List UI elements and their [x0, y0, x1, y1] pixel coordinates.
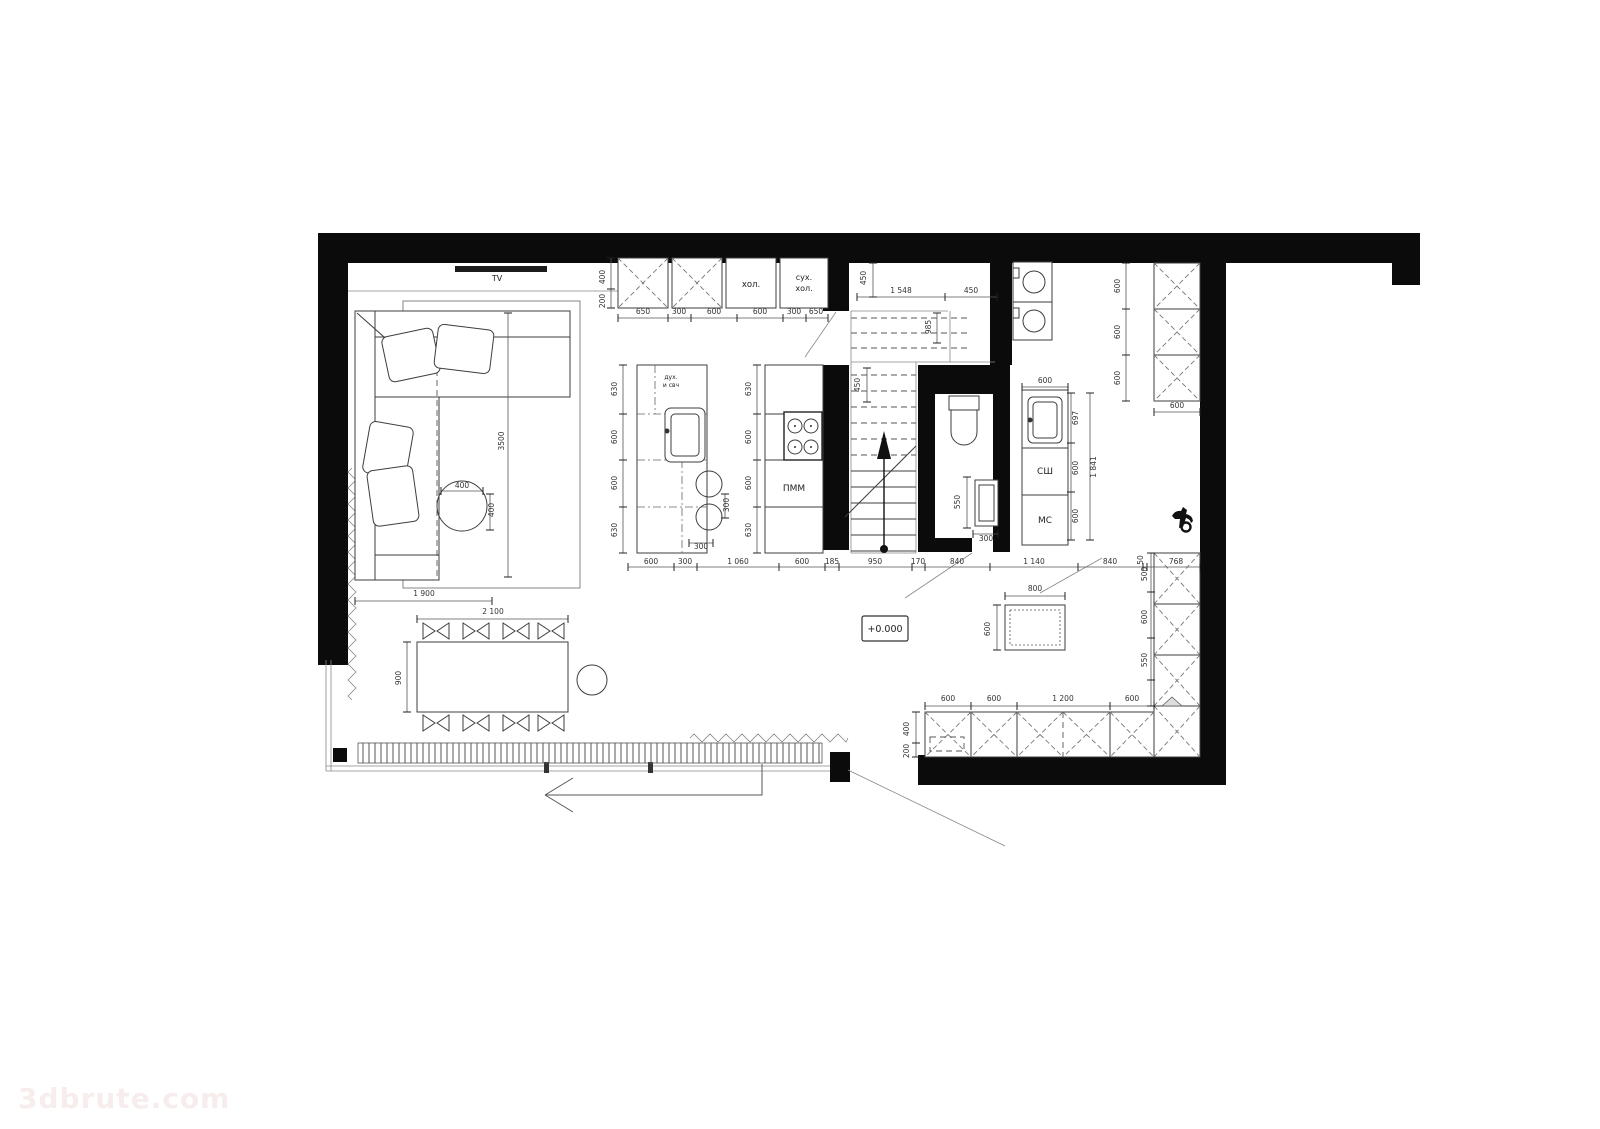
washing-machines	[1013, 262, 1052, 340]
dim-label: 600	[1113, 325, 1122, 340]
dim-label: 50	[1136, 555, 1145, 565]
dim-label: 300	[722, 498, 731, 513]
dim-label: 300	[678, 557, 693, 566]
dim-label: 450	[859, 271, 868, 286]
round-chair	[577, 665, 607, 695]
window-post	[830, 752, 850, 782]
bottom-cabinet-run	[925, 712, 1154, 757]
dim-label: 768	[1169, 557, 1184, 566]
wardrobe-column-top	[1154, 263, 1200, 401]
window-mullion	[648, 762, 653, 773]
dim-label: 600	[610, 476, 619, 491]
elevation-marker: +0.000	[862, 616, 908, 641]
kitchen-run: ПММ	[765, 365, 823, 553]
dim-label: 400	[902, 722, 911, 737]
animal-silhouette-icon	[1172, 507, 1193, 532]
dim-label: 450	[853, 378, 862, 393]
dim-label: 1 140	[1023, 557, 1045, 566]
dim-label: 600	[610, 430, 619, 445]
dim-label: 400	[487, 503, 496, 518]
dim-label: 600	[795, 557, 810, 566]
dim-label: 630	[744, 382, 753, 397]
dim-label: 3500	[497, 431, 506, 450]
dim-label: 697	[1071, 411, 1080, 426]
sink-cabinet-label: МС	[1038, 516, 1052, 526]
utility-column: СШ МС	[1022, 390, 1068, 545]
kitchen-island: дух. и свч	[637, 365, 722, 553]
kitchen-top-cabinets: хол. сух. хол.	[618, 258, 828, 308]
dim-label: 600	[1071, 461, 1080, 476]
dim-label: 1 548	[890, 286, 912, 295]
dim-label: 550	[953, 495, 962, 510]
dim-label: 600	[753, 307, 768, 316]
dim-label: 300	[672, 307, 687, 316]
dim-label: 650	[809, 307, 824, 316]
tv-label: TV	[491, 274, 503, 283]
dim-label: 450	[964, 286, 979, 295]
faucet-icon	[1028, 418, 1033, 423]
dim-label: 600	[1038, 376, 1053, 385]
dining-table	[417, 642, 568, 712]
dim-label: 840	[1103, 557, 1118, 566]
dishwasher-label: ПММ	[783, 484, 805, 494]
dim-label: 600	[987, 694, 1002, 703]
dry-fridge-label: сух.	[796, 273, 812, 282]
dim-label: 600	[644, 557, 659, 566]
dim-label: 400	[455, 481, 470, 490]
dim-label: 600	[1071, 509, 1080, 524]
dim-label: 600	[983, 622, 992, 637]
dim-label: 600	[744, 476, 753, 491]
radiator-band	[358, 743, 822, 763]
hob	[784, 412, 822, 460]
dim-label: 600	[1113, 371, 1122, 386]
tv-icon	[455, 266, 547, 272]
dim-label: 630	[610, 523, 619, 538]
floor-plan-canvas: TV хол. сух.	[0, 0, 1600, 1129]
dry-fridge-label: хол.	[795, 284, 812, 293]
dim-label: 170	[911, 557, 926, 566]
toilet	[949, 396, 979, 445]
dim-label: 2 100	[482, 607, 504, 616]
dim-label: 1 060	[727, 557, 749, 566]
dim-label: 300	[787, 307, 802, 316]
dim-label: 600	[1170, 401, 1185, 410]
dim-label: 600	[941, 694, 956, 703]
dim-label: 185	[825, 557, 840, 566]
dim-label: 400	[598, 270, 607, 285]
watermark: 3dbrute.com	[18, 1082, 230, 1115]
dim-label: 300	[694, 542, 709, 551]
floor-plan-page: TV хол. сух.	[0, 0, 1600, 1129]
dim-label: 650	[636, 307, 651, 316]
dim-label: 1 900	[413, 589, 435, 598]
wardrobe-column-bottom	[1154, 553, 1200, 757]
dim-label: 840	[950, 557, 965, 566]
dim-label: 500	[1140, 567, 1149, 582]
fridge-label: хол.	[742, 280, 760, 290]
dim-label: 900	[394, 671, 403, 686]
coffee-table	[1005, 605, 1065, 650]
oven-label: и свч	[663, 382, 679, 389]
dim-label: 600	[1113, 279, 1122, 294]
dim-label: 630	[610, 382, 619, 397]
sofa	[355, 311, 570, 580]
dim-label: 600	[744, 430, 753, 445]
dim-label: 800	[1028, 584, 1043, 593]
dim-label: 630	[744, 523, 753, 538]
wc-sink	[975, 480, 998, 526]
elevation-label: +0.000	[867, 624, 902, 635]
pillow	[366, 465, 419, 527]
dim-label: 950	[868, 557, 883, 566]
dim-label: 200	[598, 294, 607, 309]
oven-label: дух.	[664, 374, 677, 381]
dim-label: 550	[1140, 653, 1149, 668]
dim-label: 300	[979, 534, 994, 543]
dim-label: 600	[707, 307, 722, 316]
pillow	[434, 324, 495, 374]
tv-unit: TV	[348, 266, 618, 291]
dim-label: 600	[1140, 610, 1149, 625]
dim-label: 1 200	[1052, 694, 1074, 703]
dim-label: 1 841	[1089, 456, 1098, 478]
dim-label: 985	[924, 320, 933, 335]
window-mullion	[544, 762, 549, 773]
corner-post	[333, 748, 347, 762]
drying-cabinet-label: СШ	[1037, 467, 1053, 477]
dim-label: 600	[1125, 694, 1140, 703]
dim-label: 200	[902, 744, 911, 759]
faucet-icon	[665, 429, 670, 434]
